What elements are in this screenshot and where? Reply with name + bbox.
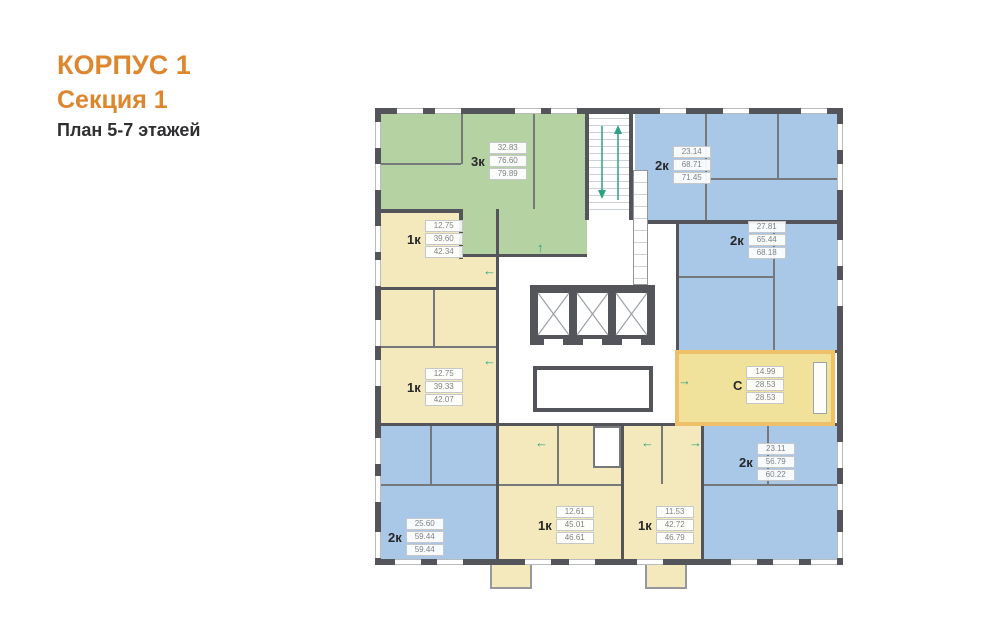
apartment-type: 1к: [407, 380, 421, 395]
window-marker: [525, 559, 551, 565]
area-value: 14.99: [746, 366, 784, 378]
entrance-arrow-icon: ←: [483, 354, 496, 367]
floor-plan-page: { "header": { "building": "КОРПУС 1", "s…: [0, 0, 1000, 633]
window-marker: [837, 240, 843, 266]
section-title: Секция 1: [57, 86, 168, 115]
apartment-type: 3к: [471, 154, 485, 169]
window-marker: [773, 559, 799, 565]
area-value: 39.60: [425, 233, 463, 245]
wall-segment: [381, 209, 463, 213]
stair-direction-arrows: [589, 112, 629, 216]
balcony: [490, 561, 532, 589]
apartment-label-1k-bottom-middle[interactable]: 1к 12.61 45.01 46.61: [538, 506, 594, 544]
area-value: 32.83: [489, 142, 527, 154]
area-value: 71.45: [673, 172, 711, 184]
entrance-arrow-icon: ←: [483, 264, 496, 277]
wall-segment: [381, 287, 498, 290]
apartment-label-3k[interactable]: 3к 32.83 76.60 79.89: [471, 142, 527, 180]
area-value: 25.60: [406, 518, 444, 530]
wall-segment: [498, 484, 623, 486]
area-value: 23.11: [757, 443, 795, 455]
window-marker: [837, 124, 843, 150]
window-marker: [375, 260, 381, 286]
area-value: 68.71: [673, 159, 711, 171]
area-value: 60.22: [757, 469, 795, 481]
wall-segment: [533, 114, 535, 209]
wall-segment: [678, 276, 773, 278]
area-value: 12.75: [425, 368, 463, 380]
corridor-vestibule: [593, 426, 621, 468]
window-marker: [731, 559, 757, 565]
window-marker: [837, 164, 843, 190]
apartment-label-1k-bottom-right[interactable]: 1к 11.53 42.72 46.79: [638, 506, 694, 544]
wall-segment: [661, 426, 663, 484]
wall-segment: [430, 426, 432, 484]
apartment-type: 2к: [655, 158, 669, 173]
balcony: [645, 561, 687, 589]
area-value: 79.89: [489, 168, 527, 180]
area-value: 11.53: [656, 506, 694, 518]
window-marker: [569, 559, 595, 565]
entrance-arrow-icon: ←: [535, 436, 548, 449]
window-marker: [375, 122, 381, 148]
entrance-arrow-icon: ↑: [537, 241, 544, 254]
apartment-label-1k-left-lower[interactable]: 1к 12.75 39.33 42.07: [407, 368, 463, 406]
area-value: 68.18: [748, 247, 786, 259]
area-value: 45.01: [556, 519, 594, 531]
area-value: 27.81: [748, 221, 786, 233]
apartment-label-2k-right-bottom[interactable]: 2к 23.11 56.79 60.22: [739, 443, 795, 481]
window-marker: [375, 360, 381, 386]
window-marker: [375, 532, 381, 558]
area-value: 59.44: [406, 544, 444, 556]
wall-segment: [705, 178, 837, 180]
area-value: 12.61: [556, 506, 594, 518]
area-value: 46.61: [556, 532, 594, 544]
window-marker: [660, 108, 686, 114]
wall-segment: [621, 426, 624, 559]
window-marker: [551, 108, 577, 114]
window-marker: [837, 280, 843, 306]
service-room: [533, 366, 653, 412]
window-marker: [837, 442, 843, 468]
window-marker: [837, 532, 843, 558]
wall-segment: [557, 426, 559, 484]
window-marker: [375, 164, 381, 190]
apartment-label-2k-right-middle[interactable]: 2к 27.81 65.44 68.18: [730, 221, 786, 259]
elevator-block: [530, 285, 655, 345]
window-marker: [397, 108, 423, 114]
entrance-arrow-icon: →: [689, 436, 702, 449]
apartment-type: 2к: [388, 530, 402, 545]
floors-subtitle: План 5-7 этажей: [57, 120, 200, 141]
building-title: КОРПУС 1: [57, 50, 191, 81]
apartment-type: 2к: [730, 233, 744, 248]
window-marker: [375, 226, 381, 252]
wall-segment: [777, 114, 779, 180]
apartment-type: С: [733, 378, 742, 393]
window-marker: [637, 559, 663, 565]
apartment-type: 2к: [739, 455, 753, 470]
area-value: 65.44: [748, 234, 786, 246]
staircase: [589, 112, 629, 216]
floor-plan: ← ← ↑ → ← ← → ↑ 3к 32.83 76.60 79.89 2к …: [375, 108, 843, 565]
area-value: 42.07: [425, 394, 463, 406]
area-value: 42.72: [656, 519, 694, 531]
utility-shaft: [633, 170, 648, 285]
window-marker: [375, 438, 381, 464]
apartment-label-2k-top-right[interactable]: 2к 23.14 68.71 71.45: [655, 146, 711, 184]
window-marker: [801, 108, 827, 114]
apartment-3k-region[interactable]: [461, 209, 587, 254]
window-marker: [811, 559, 837, 565]
apartment-label-1k-left-upper[interactable]: 1к 12.75 39.60 42.34: [407, 220, 463, 258]
window-marker: [375, 320, 381, 346]
wall-segment: [461, 114, 463, 164]
area-value: 23.14: [673, 146, 711, 158]
wall-segment: [496, 209, 499, 559]
wall-segment: [676, 224, 679, 350]
area-value: 76.60: [489, 155, 527, 167]
area-value: 28.53: [746, 379, 784, 391]
wall-segment: [381, 484, 498, 486]
window-marker: [723, 108, 749, 114]
area-value: 28.53: [746, 392, 784, 404]
area-value: 46.79: [656, 532, 694, 544]
area-value: 59.44: [406, 531, 444, 543]
wall-segment: [703, 484, 837, 486]
wall-segment: [381, 346, 498, 348]
apartment-type: 1к: [538, 518, 552, 533]
apartment-label-2k-left-bottom[interactable]: 2к 25.60 59.44 59.44: [388, 518, 444, 556]
area-value: 56.79: [757, 456, 795, 468]
area-value: 39.33: [425, 381, 463, 393]
window-marker: [837, 484, 843, 510]
area-value: 12.75: [425, 220, 463, 232]
entrance-arrow-icon: →: [678, 374, 691, 387]
wall-segment: [381, 163, 461, 165]
window-marker: [395, 559, 421, 565]
studio-balcony: [813, 362, 827, 414]
entrance-arrow-icon: ←: [641, 436, 654, 449]
window-marker: [435, 108, 461, 114]
wall-segment: [433, 290, 435, 346]
wall-segment: [459, 254, 587, 257]
window-marker: [375, 476, 381, 502]
apartment-type: 1к: [407, 232, 421, 247]
area-value: 42.34: [425, 246, 463, 258]
window-marker: [515, 108, 541, 114]
apartment-label-studio[interactable]: С 14.99 28.53 28.53: [733, 366, 784, 404]
apartment-type: 1к: [638, 518, 652, 533]
elevator-icon: [530, 285, 655, 345]
window-marker: [437, 559, 463, 565]
